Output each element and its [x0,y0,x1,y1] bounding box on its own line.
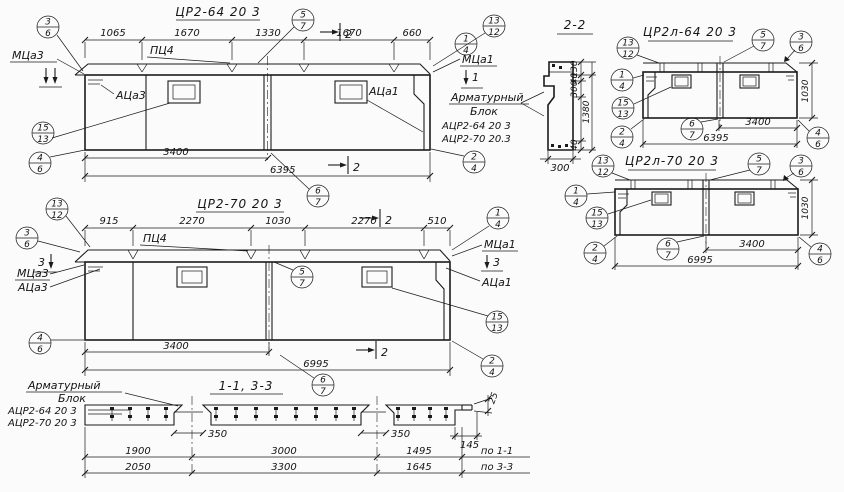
callout-6-7: 6 7 [307,185,329,208]
elev2-cap-label: ПЦ4 [143,232,167,245]
svg-text:7: 7 [320,387,326,397]
arm-right-line1: Арматурный [450,91,523,104]
svg-text:6: 6 [689,120,695,130]
elev1-sec-right-num: 1 [472,71,479,84]
callout-4-6: 4 6 [29,332,51,355]
callout-2-4: 2 4 [481,355,503,378]
svg-text:4: 4 [817,245,823,255]
strip-dim-rows: 1900 3000 1495 по 1-1 2050 3300 1645 по … [82,427,530,478]
panelB-title: ЦР2л-70 20 3 [625,154,719,168]
svg-text:15: 15 [591,209,603,219]
arm-bottom-item1: АЦР2-64 20 3 [7,406,77,417]
elev1-anchor-left-label: АЦа3 [115,89,146,102]
section22-column [544,62,573,150]
callout-6-7: 6 7 [657,238,679,261]
svg-text:15: 15 [491,313,503,323]
elev2-window-2 [362,267,392,287]
svg-text:2050: 2050 [125,462,150,473]
svg-text:12: 12 [488,28,500,38]
section-2-2: 2-2 130 40 300 1380 40 300 [540,18,596,174]
panelA-body [643,56,797,127]
svg-text:40: 40 [570,139,580,151]
callout-15-13: 15 13 [612,97,634,120]
callout-15-13: 15 13 [586,207,608,230]
svg-text:3000: 3000 [271,446,296,457]
svg-text:4: 4 [37,334,43,344]
svg-text:7: 7 [689,131,695,141]
callout-3-6: 3 6 [16,227,38,250]
panelB-body [615,173,798,244]
svg-text:3: 3 [45,18,51,28]
svg-text:4: 4 [471,164,477,174]
callout-3-6: 3 6 [37,16,59,39]
elev1-cap-label: ПЦ4 [150,44,174,57]
svg-text:13: 13 [597,157,609,167]
callout-15-13: 15 13 [32,122,54,145]
svg-text:15: 15 [37,124,49,134]
elev2-sec-mid-num: 2 [385,214,392,227]
engineering-drawing-sheet: ЦР2-64 20 3 1065 1670 1330 1670 660 ПЦ4 [0,0,844,492]
svg-text:4: 4 [573,198,579,208]
svg-text:1900: 1900 [125,446,150,457]
dim: 1065 [100,28,125,39]
callout-6-7: 6 7 [681,118,703,141]
arm-right-line2: Блок [470,105,498,118]
svg-text:300: 300 [550,163,569,174]
arm-bottom-line2: Блок [58,392,86,405]
callout-2-4: 2 4 [584,242,606,265]
svg-text:6: 6 [315,187,321,197]
elevation-cr2l-64: ЦР2л-64 20 3 3400 639 [611,25,829,150]
svg-text:12: 12 [597,168,609,178]
svg-text:1: 1 [573,187,579,197]
svg-text:6: 6 [37,165,43,175]
svg-text:4: 4 [37,154,43,164]
drawing-canvas: ЦР2-64 20 3 1065 1670 1330 1670 660 ПЦ4 [0,0,844,492]
svg-text:1495: 1495 [406,446,431,457]
callout-3-6: 3 6 [790,31,812,54]
svg-text:6: 6 [817,256,823,266]
callout-5-7: 5 7 [752,29,774,52]
svg-text:6: 6 [798,168,804,178]
svg-text:6: 6 [45,29,51,39]
svg-text:7: 7 [665,251,671,261]
svg-text:300: 300 [570,80,580,97]
svg-text:2: 2 [619,128,625,138]
elev2-top-dims: 915 2270 1030 2270 510 [82,216,453,246]
svg-text:6395: 6395 [703,133,728,144]
dim: 6995 [303,359,328,370]
svg-text:5: 5 [300,11,306,21]
elev2-section-mark-2-bottom: 2 [356,341,388,359]
svg-text:350: 350 [208,429,227,440]
svg-text:13: 13 [51,200,63,210]
svg-text:2: 2 [471,153,477,163]
strip-rebar-symbols [110,407,448,421]
callout-5-7: 5 7 [291,266,313,289]
dim: 3400 [163,341,188,352]
elev2-bottom-dims: 3400 6995 [82,341,453,376]
svg-text:3400: 3400 [739,239,764,250]
elev1-panel-body [52,56,430,160]
svg-text:12: 12 [51,211,63,221]
elev1-coping: ПЦ4 [75,44,430,75]
svg-text:4: 4 [592,255,598,265]
dim: 3400 [163,147,188,158]
section22-title: 2-2 [564,18,587,32]
callout-1-4: 1 4 [611,69,633,92]
svg-text:1: 1 [619,71,625,81]
callout-1-4: 1 4 [565,185,587,208]
svg-text:25: 25 [487,391,500,405]
panelA-title: ЦР2л-64 20 3 [643,25,737,39]
dim: 2270 [179,216,204,227]
callout-4-6: 4 6 [807,127,829,150]
svg-text:6: 6 [320,376,326,386]
svg-text:1: 1 [463,35,469,45]
arm-bottom-line1: Арматурный [27,379,100,392]
strip-row1-label: по 1-1 [481,446,513,457]
elev1-section-mark-1-left [39,68,62,87]
svg-text:2: 2 [489,357,495,367]
dim: 1670 [174,28,199,39]
callout-3-6: 3 6 [790,155,812,178]
svg-text:13: 13 [491,324,503,334]
svg-text:7: 7 [315,198,321,208]
elev1-section-mark-1-right: 1 [461,70,483,88]
svg-text:3300: 3300 [271,462,296,473]
svg-text:5: 5 [760,31,766,41]
callout-5-7: 5 7 [748,153,770,176]
svg-text:1: 1 [495,209,501,219]
svg-text:13: 13 [622,39,634,49]
elev2-sec-left-num: 3 [38,256,45,269]
dim: 6395 [270,165,295,176]
svg-text:6: 6 [37,345,43,355]
svg-text:5: 5 [756,155,762,165]
elev1-section-mark-2-bottom: 2 [328,156,360,174]
elev2-window-1 [177,267,207,287]
arm-bottom-item2: АЦР2-70 20 3 [7,418,77,429]
elevation-cr2-64: ЦР2-64 20 3 1065 1670 1330 1670 660 ПЦ4 [10,5,505,208]
elev1-sec-mid-num: 2 [345,28,352,41]
callout-15-13: 15 13 [486,311,508,334]
svg-text:1030: 1030 [801,79,811,102]
svg-text:15: 15 [617,99,629,109]
callout-4-6: 4 6 [809,243,831,266]
svg-text:3: 3 [798,33,804,43]
dim: 915 [99,216,118,227]
callout-13-12: 13 12 [592,155,614,178]
elev2-anchor-right-label: АЦа1 [481,276,512,289]
svg-text:13: 13 [37,135,49,145]
svg-text:3400: 3400 [745,117,770,128]
svg-text:6: 6 [815,140,821,150]
callout-13-12: 13 12 [483,15,505,38]
svg-text:12: 12 [622,50,634,60]
dim: 660 [402,28,421,39]
svg-text:4: 4 [815,129,821,139]
arm-right-item1: АЦР2-64 20 3 [441,121,511,132]
svg-text:4: 4 [619,139,625,149]
svg-text:7: 7 [300,22,306,32]
elev1-anchor-right-label: АЦа1 [368,85,399,98]
svg-text:145: 145 [460,440,479,451]
svg-text:4: 4 [463,46,469,56]
svg-text:13: 13 [488,17,500,27]
svg-text:7: 7 [299,279,305,289]
elev1-bottom-dims: 3400 6395 [82,147,433,182]
elev1-sec-mid-bottom-num: 2 [353,161,360,174]
svg-text:350: 350 [391,429,410,440]
elev2-sec-right-num: 3 [493,256,500,269]
elev1-mark-left-label: МЦа3 [12,49,44,62]
svg-text:4: 4 [619,82,625,92]
arm-right-item2: АЦР2-70 20.3 [441,134,511,145]
callout-1-4: 1 4 [487,207,509,230]
svg-text:13: 13 [591,220,603,230]
svg-text:1645: 1645 [406,462,431,473]
elev2-title: ЦР2-70 20 3 [197,197,282,211]
elev2-sec-mid-bottom-num: 2 [381,346,388,359]
arm-block-section: Арматурный Блок АЦР2-64 20 3 АЦР2-70 20 … [7,379,530,478]
svg-text:4: 4 [489,368,495,378]
callout-2-4: 2 4 [611,126,633,149]
callout-6-7: 6 7 [312,374,334,397]
elevation-cr2l-70: ЦР2л-70 20 3 3400 699 [565,153,831,270]
svg-text:7: 7 [756,166,762,176]
svg-text:2: 2 [592,244,598,254]
svg-text:4: 4 [495,220,501,230]
callout-4-6: 4 6 [29,152,51,175]
panelB-dims: 3400 6995 1030 [612,177,818,270]
svg-text:3: 3 [24,229,30,239]
elev2-mark-right-label: МЦа1 [484,238,516,251]
svg-text:3: 3 [798,157,804,167]
svg-text:1030: 1030 [801,196,811,219]
callout-13-12: 13 12 [46,198,68,221]
elev2-anchor-left-label: АЦа3 [17,281,48,294]
elev1-title: ЦР2-64 20 3 [175,5,260,19]
arm-block-note-right: Арматурный Блок АЦР2-64 20 3 АЦР2-70 20.… [441,91,544,145]
panelA-dims: 3400 6395 1030 [640,60,818,148]
svg-text:6: 6 [24,240,30,250]
strip-title: 1-1, 3-3 [219,379,274,393]
elevation-cr2-70: ЦР2-70 20 3 915 2270 1030 2270 510 ПЦ4 [15,197,518,397]
callout-5-7: 5 7 [292,9,314,32]
svg-text:6995: 6995 [687,255,712,266]
callout-13-12: 13 12 [617,37,639,60]
svg-text:1380: 1380 [582,100,592,123]
elev2-section-mark-3-right: 3 [481,255,503,271]
svg-text:6: 6 [798,44,804,54]
svg-text:7: 7 [760,42,766,52]
elev2-coping: ПЦ4 [75,232,450,262]
strip-row2-label: по 3-3 [481,462,513,473]
elev2-panel-body [85,245,488,350]
dim: 510 [427,216,446,227]
svg-text:6: 6 [665,240,671,250]
svg-text:5: 5 [299,268,305,278]
svg-text:13: 13 [617,110,629,120]
elev1-top-dims: 1065 1670 1330 1670 660 [82,28,433,60]
dim: 1330 [255,28,280,39]
dim: 1030 [265,216,290,227]
callout-2-4: 2 4 [463,151,485,174]
